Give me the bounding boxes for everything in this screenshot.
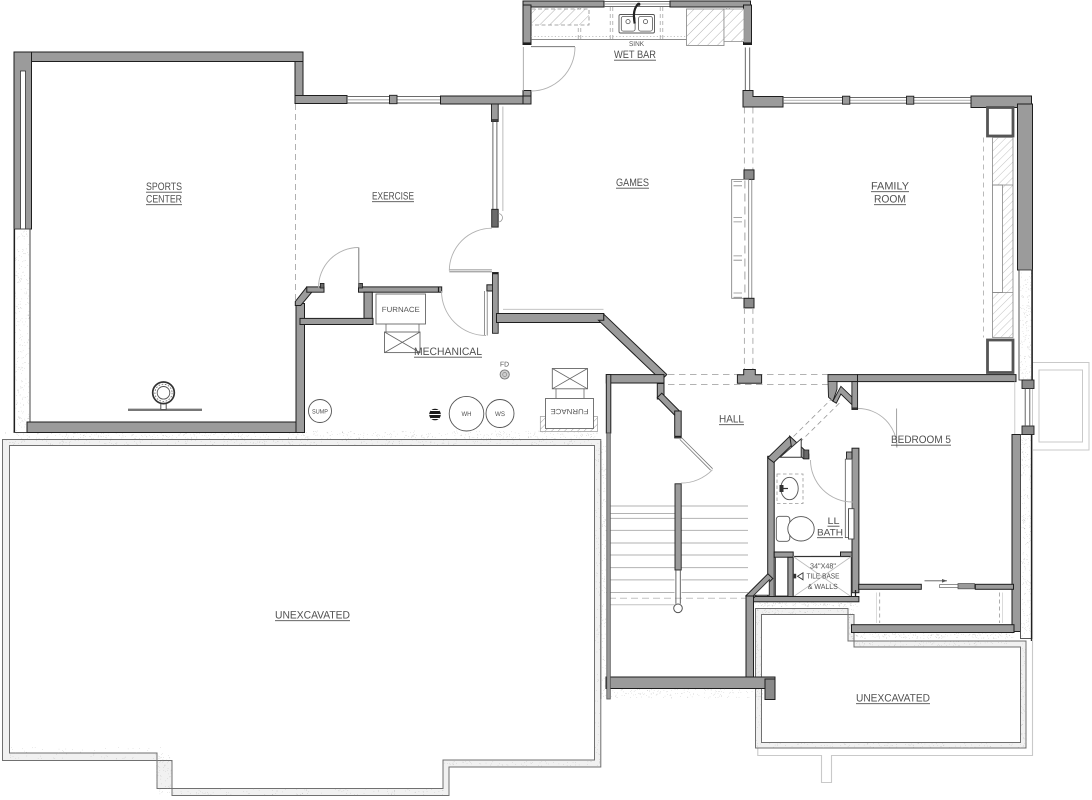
svg-text:SINK: SINK [629,41,644,48]
svg-text:FD: FD [500,362,509,369]
svg-text:& WALLS: & WALLS [808,582,838,591]
svg-text:34"X48": 34"X48" [810,562,836,571]
svg-text:ROOM: ROOM [874,194,906,206]
svg-text:TILE BASE: TILE BASE [807,572,840,581]
svg-text:CENTER: CENTER [146,194,182,206]
svg-text:BEDROOM 5: BEDROOM 5 [891,434,951,446]
svg-text:UNEXCAVATED: UNEXCAVATED [275,610,350,622]
svg-text:FURNACE: FURNACE [551,407,589,416]
svg-text:WET BAR: WET BAR [614,49,656,61]
svg-text:GAMES: GAMES [616,177,649,189]
svg-text:LL: LL [828,516,840,527]
svg-text:SUMP: SUMP [312,409,328,416]
svg-text:EXERCISE: EXERCISE [372,191,414,203]
svg-text:MECHANICAL: MECHANICAL [414,346,482,358]
svg-text:FURNACE: FURNACE [382,305,420,314]
svg-text:HALL: HALL [719,414,744,426]
svg-text:WS: WS [495,411,506,418]
svg-text:UNEXCAVATED: UNEXCAVATED [856,693,930,705]
svg-text:WH: WH [462,411,472,418]
svg-text:BATH: BATH [817,528,843,539]
svg-text:FAMILY: FAMILY [871,181,909,193]
svg-text:SPORTS: SPORTS [146,181,182,193]
